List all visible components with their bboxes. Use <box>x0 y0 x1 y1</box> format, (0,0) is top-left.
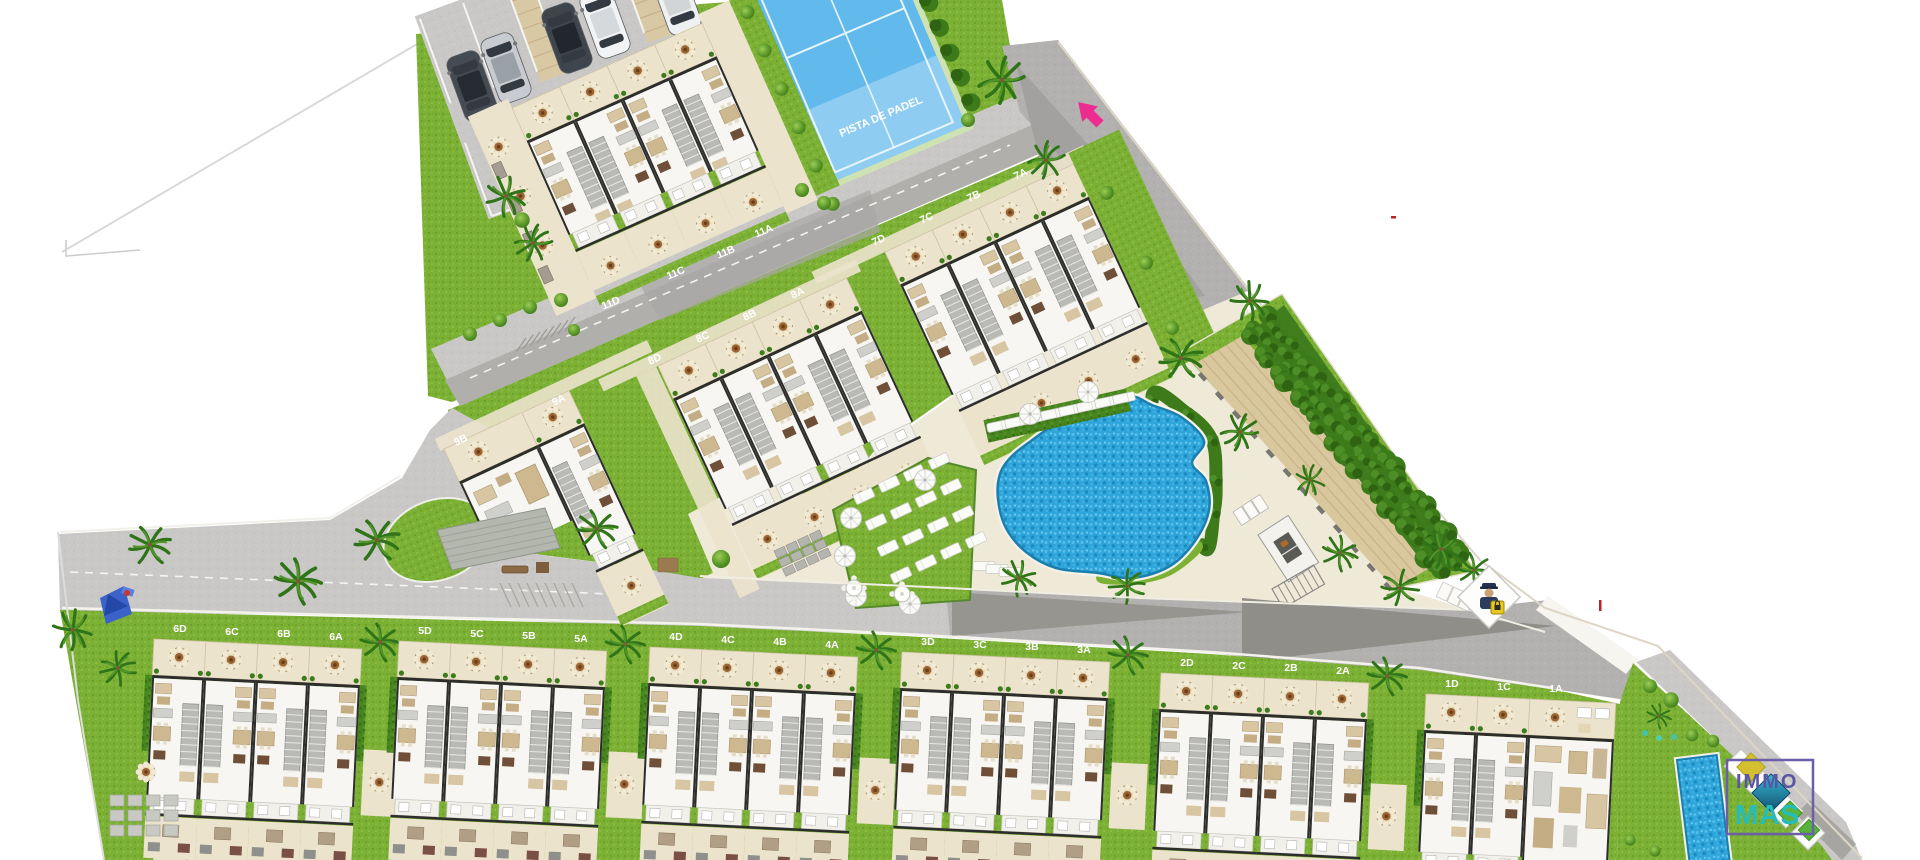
svg-text:2C: 2C <box>1232 660 1246 672</box>
svg-text:MAS: MAS <box>1735 799 1800 830</box>
svg-text:4A: 4A <box>825 639 839 651</box>
svg-text:1D: 1D <box>1445 678 1459 690</box>
svg-text:2B: 2B <box>1284 662 1298 674</box>
svg-text:3D: 3D <box>921 636 935 648</box>
svg-text:5B: 5B <box>522 630 536 642</box>
svg-text:5A: 5A <box>574 633 588 645</box>
svg-text:5C: 5C <box>470 628 484 640</box>
svg-text:6B: 6B <box>277 628 291 640</box>
svg-text:1A: 1A <box>1549 683 1563 695</box>
svg-text:3A: 3A <box>1077 644 1091 656</box>
svg-text:4D: 4D <box>669 631 683 643</box>
svg-text:3C: 3C <box>973 639 987 651</box>
svg-text:3B: 3B <box>1025 641 1039 653</box>
svg-text:IMMO: IMMO <box>1736 771 1798 793</box>
svg-text:4B: 4B <box>773 636 787 648</box>
svg-text:4C: 4C <box>721 634 735 646</box>
svg-text:6C: 6C <box>225 626 239 638</box>
svg-text:2A: 2A <box>1336 665 1350 677</box>
svg-text:2D: 2D <box>1180 657 1194 669</box>
svg-text:6A: 6A <box>329 631 343 643</box>
svg-text:5D: 5D <box>418 625 432 637</box>
svg-text:6D: 6D <box>173 623 187 635</box>
svg-text:1C: 1C <box>1497 681 1511 693</box>
